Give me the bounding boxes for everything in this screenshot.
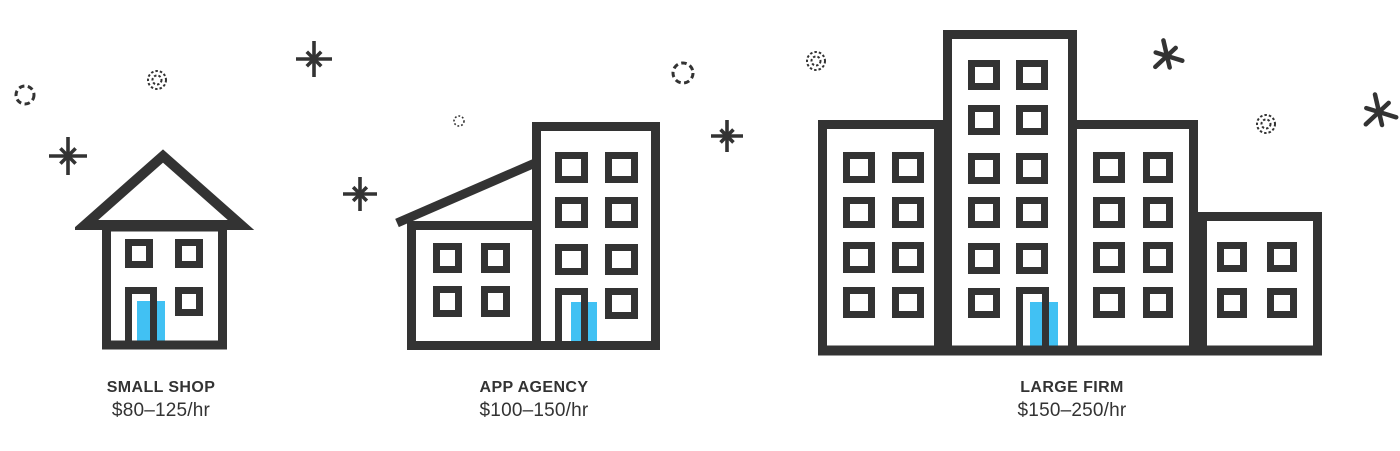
pricing-illustration: SMALL SHOP $80–125/hr APP bbox=[0, 0, 1400, 451]
tier-label: LARGE FIRM bbox=[952, 379, 1192, 397]
sparkle-icon bbox=[342, 176, 378, 212]
circle-double-dotted-icon bbox=[145, 68, 169, 92]
small-house-icon bbox=[75, 148, 265, 358]
tier-label: SMALL SHOP bbox=[41, 379, 281, 397]
tier-rate: $100–150/hr bbox=[414, 400, 654, 423]
circle-dashed-icon bbox=[13, 83, 37, 107]
tier-label: APP AGENCY bbox=[414, 379, 654, 397]
sparkle-icon bbox=[295, 40, 333, 78]
sparkle-icon bbox=[710, 119, 744, 153]
tier-rate: $80–125/hr bbox=[41, 400, 281, 423]
circle-dashed-icon bbox=[670, 60, 696, 86]
asterisk-icon bbox=[1359, 92, 1399, 132]
large-buildings-icon bbox=[810, 25, 1330, 360]
tier-rate: $150–250/hr bbox=[952, 400, 1192, 423]
mid-buildings-icon bbox=[385, 115, 675, 360]
